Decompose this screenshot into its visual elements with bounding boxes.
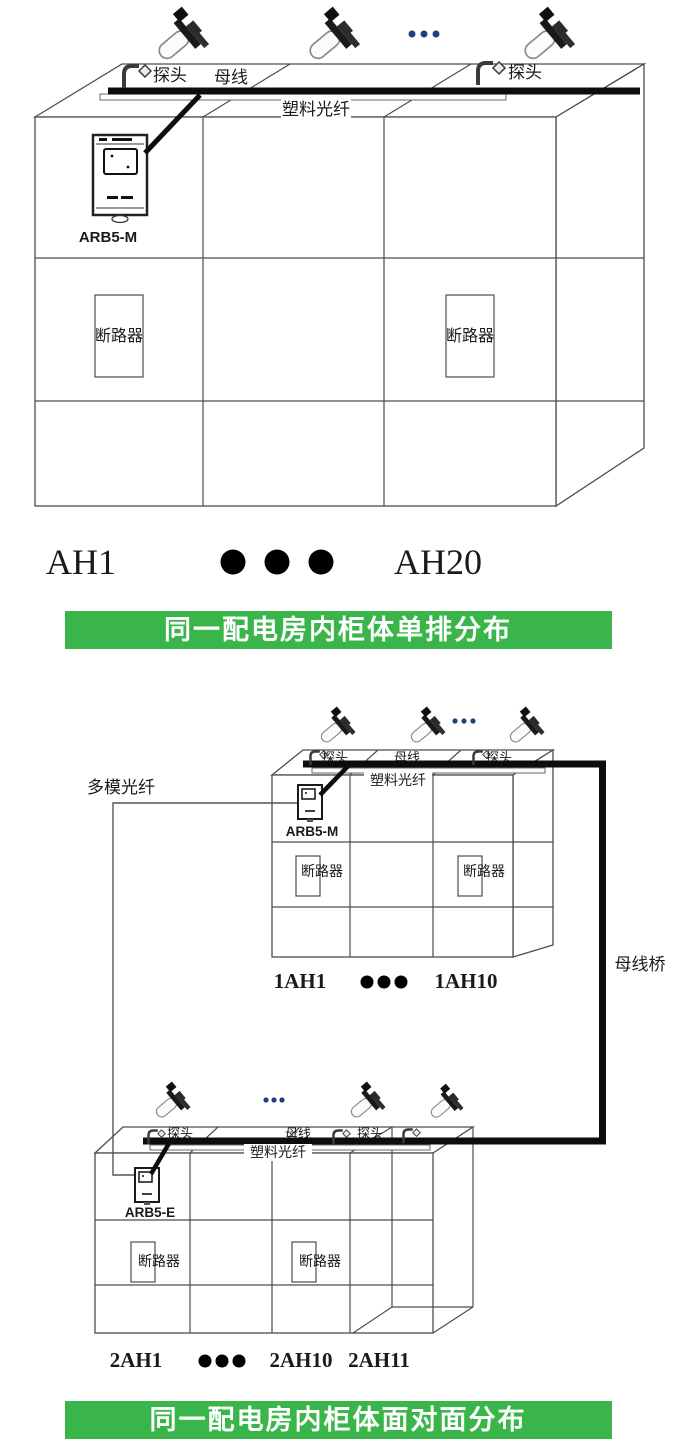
- cabinet-range-dots: [221, 550, 334, 575]
- plastic-fiber-label: 塑料光纤: [282, 100, 350, 119]
- cabinet-first-label: AH1: [46, 542, 116, 582]
- probe-label: 探头: [357, 1126, 383, 1141]
- figure1-caption: 同一配电房内柜体单排分布: [164, 615, 512, 645]
- breaker-label: 断路器: [446, 327, 494, 345]
- device-label: ARB5-M: [286, 824, 339, 839]
- figure1-single-row-diagram: 探头 母线 探头 塑料光纤 ARB5-M 断路器 断路器 AH1 AH20 同一…: [35, 7, 644, 649]
- arb5-m-device: [298, 785, 322, 822]
- smoke-arc-sensor: [146, 7, 212, 73]
- probe-label: 探头: [153, 66, 187, 85]
- breaker-label: 断路器: [301, 863, 343, 879]
- cabinet-mid-label: 2AH10: [270, 1348, 333, 1372]
- probe-label: 探头: [508, 63, 542, 82]
- breaker-label: 断路器: [95, 327, 143, 345]
- ellipsis-dots: [452, 718, 475, 723]
- arb5-e-device: [135, 1168, 159, 1205]
- breaker-label: 断路器: [138, 1253, 180, 1269]
- cabinet-first-label: 2AH1: [110, 1348, 163, 1372]
- multimode-fiber-run: [113, 803, 298, 1175]
- device-label: ARB5-M: [79, 229, 137, 246]
- busbar-label: 母线: [214, 68, 248, 87]
- plastic-fiber-label: 塑料光纤: [250, 1144, 306, 1160]
- arb5-m-device: [93, 135, 147, 223]
- smoke-arc-sensor: [402, 707, 447, 752]
- busbar-label: 母线: [285, 1126, 311, 1141]
- smoke-arc-sensor: [312, 707, 357, 752]
- probe-label: 探头: [322, 750, 348, 765]
- cabinet-last-label: 2AH11: [348, 1348, 410, 1372]
- device-label: ARB5-E: [125, 1205, 175, 1220]
- smoke-arc-sensor: [422, 1084, 465, 1127]
- diagram-canvas: 探头 母线 探头 塑料光纤 ARB5-M 断路器 断路器 AH1 AH20 同一…: [0, 0, 677, 1448]
- ellipsis-dots: [263, 1097, 284, 1102]
- busbar-label: 母线: [394, 750, 420, 765]
- diagram-page: 探头 母线 探头 塑料光纤 ARB5-M 断路器 断路器 AH1 AH20 同一…: [0, 0, 677, 1448]
- smoke-arc-sensor: [501, 707, 546, 752]
- figure2-caption: 同一配电房内柜体面对面分布: [150, 1405, 527, 1435]
- cabinet-last-label: AH20: [394, 542, 482, 582]
- breaker-label: 断路器: [463, 863, 505, 879]
- cabinet-range-dots: [361, 976, 408, 989]
- cabinet-last-label: 1AH10: [435, 969, 498, 993]
- busbar-bridge-label: 母线桥: [615, 955, 666, 974]
- multimode-fiber-label: 多模光纤: [87, 778, 155, 797]
- smoke-arc-sensor: [342, 1082, 387, 1127]
- smoke-arc-sensor: [297, 7, 363, 73]
- ellipsis-dots: [409, 31, 440, 38]
- cabinet-row: [35, 64, 644, 506]
- probe-label: 探头: [167, 1126, 193, 1141]
- breaker-label: 断路器: [299, 1253, 341, 1269]
- cabinet-first-label: 1AH1: [274, 969, 327, 993]
- smoke-arc-sensor: [147, 1082, 192, 1127]
- probe-label: 探头: [486, 750, 512, 765]
- plastic-fiber-label: 塑料光纤: [370, 772, 426, 788]
- cabinet-range-dots: [199, 1355, 246, 1368]
- figure2-face-to-face-diagram: 探头 母线 探头 塑料光纤 ARB5-M 断路器 断路器 1AH1 1AH10 …: [65, 707, 666, 1439]
